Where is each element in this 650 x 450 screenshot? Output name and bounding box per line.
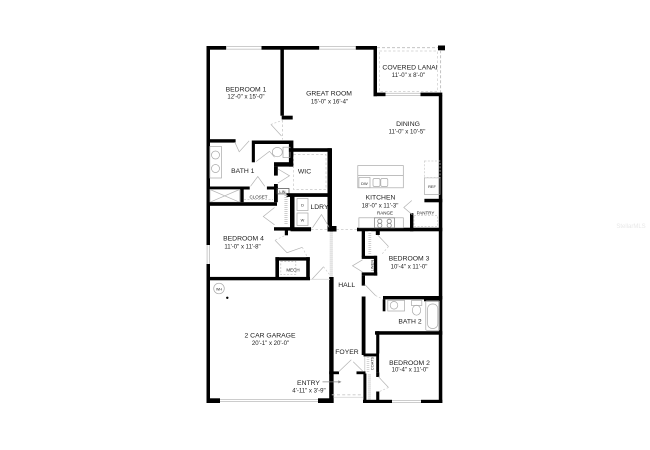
svg-text:KITCHEN: KITCHEN [366, 195, 396, 202]
svg-text:18'-0" x 11'-3": 18'-0" x 11'-3" [362, 204, 399, 210]
svg-text:10'-4" x 11'-0": 10'-4" x 11'-0" [392, 368, 429, 374]
svg-text:FOYER: FOYER [335, 349, 359, 356]
svg-text:W: W [301, 217, 305, 222]
svg-text:LIN.: LIN. [279, 189, 286, 194]
svg-text:DW: DW [361, 181, 368, 186]
svg-text:15'-0" x 16'-4": 15'-0" x 16'-4" [311, 100, 348, 106]
svg-text:REF: REF [428, 184, 436, 189]
svg-text:D: D [301, 203, 304, 208]
svg-text:BEDROOM 2: BEDROOM 2 [389, 360, 430, 367]
svg-text:BEDROOM 3: BEDROOM 3 [389, 256, 430, 263]
svg-text:4'-11" x 3'-9": 4'-11" x 3'-9" [292, 388, 325, 394]
svg-text:WIC: WIC [298, 169, 311, 176]
svg-text:LINEN: LINEN [370, 260, 375, 272]
svg-text:BEDROOM 4: BEDROOM 4 [223, 235, 264, 242]
svg-text:11'-0" x 8'-0": 11'-0" x 8'-0" [392, 73, 425, 79]
svg-text:MECH: MECH [286, 267, 299, 272]
svg-text:WH: WH [216, 287, 222, 291]
svg-text:ENTRY: ENTRY [297, 380, 320, 387]
svg-text:12'-0" x 15'-0": 12'-0" x 15'-0" [227, 95, 264, 101]
svg-text:DINING: DINING [396, 121, 420, 128]
svg-text:10'-4" x 11'-0": 10'-4" x 11'-0" [391, 264, 428, 270]
svg-text:BEDROOM 1: BEDROOM 1 [226, 87, 267, 94]
svg-text:COVERED LANAI: COVERED LANAI [382, 65, 437, 72]
svg-text:HALL: HALL [338, 282, 355, 289]
svg-text:CLOSET: CLOSET [249, 195, 267, 200]
svg-text:BATH 1: BATH 1 [231, 168, 255, 175]
svg-text:20'-1" x 20'-0": 20'-1" x 20'-0" [252, 341, 289, 347]
svg-text:BATH 2: BATH 2 [398, 319, 422, 326]
svg-text:GREAT ROOM: GREAT ROOM [306, 91, 352, 98]
svg-text:LDRY: LDRY [310, 204, 328, 211]
svg-text:2 CAR GARAGE: 2 CAR GARAGE [245, 332, 296, 339]
svg-text:RANGE: RANGE [377, 211, 393, 216]
svg-text:11'-0" x 10'-5": 11'-0" x 10'-5" [389, 130, 426, 136]
svg-text:StellarMLS: StellarMLS [616, 224, 645, 230]
svg-text:PANTRY: PANTRY [417, 210, 435, 215]
svg-text:11'-0" x 11'-8": 11'-0" x 11'-8" [224, 245, 260, 251]
svg-text:COATS: COATS [370, 357, 375, 371]
